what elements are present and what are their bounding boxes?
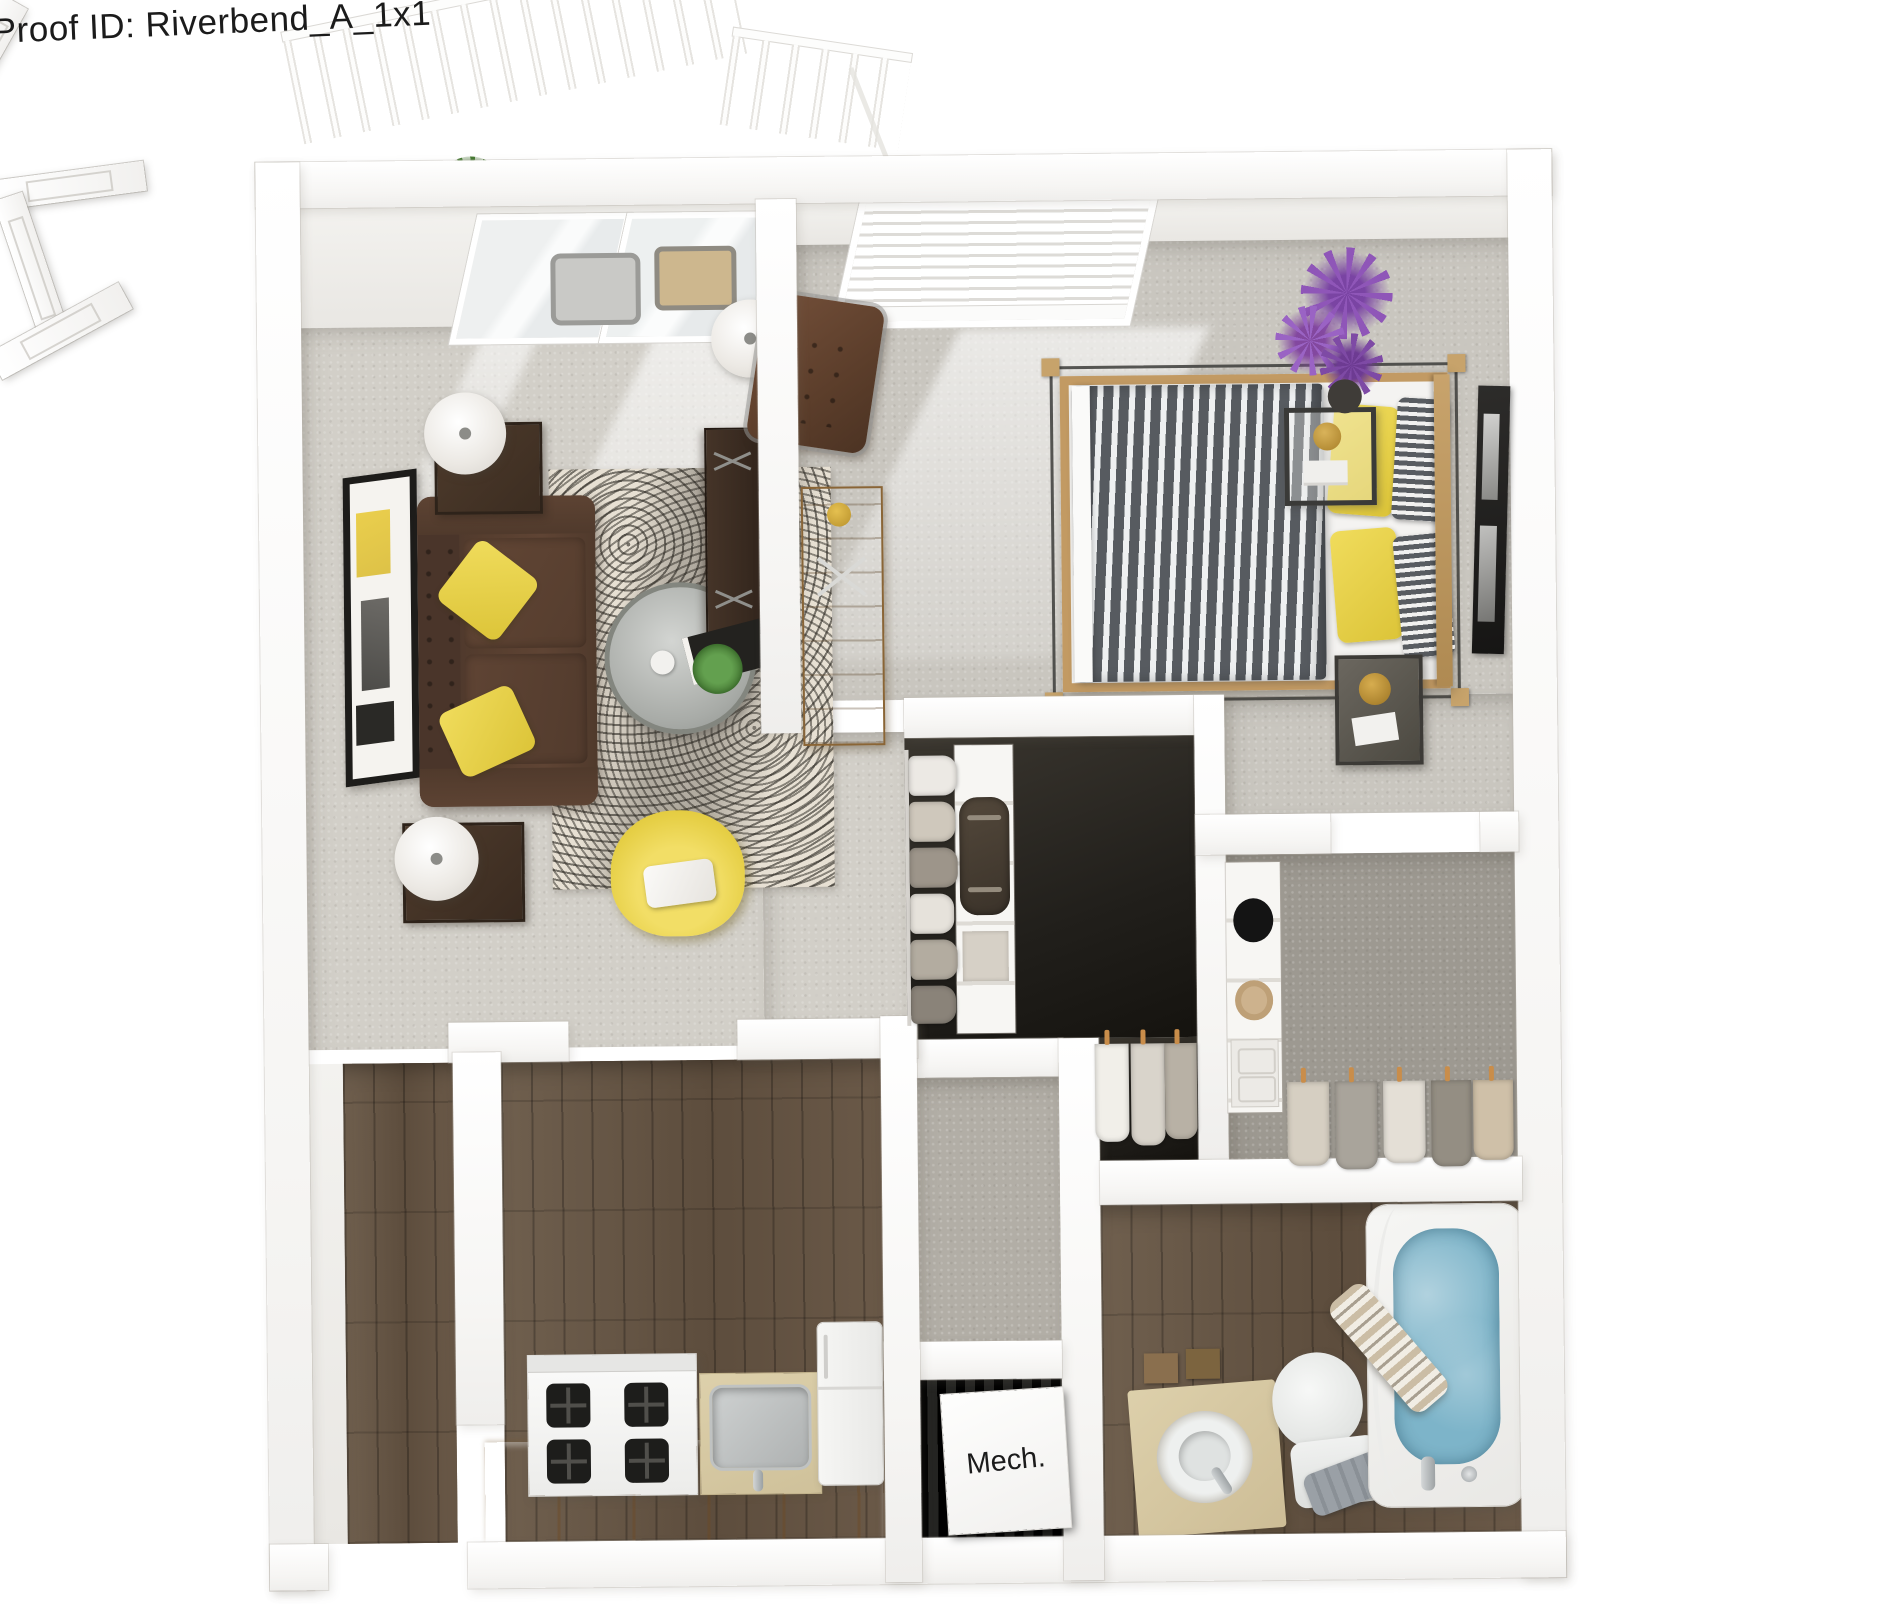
patio-chair [654, 246, 737, 311]
sofa-backrest [417, 497, 462, 807]
accent-chair-yellow [610, 810, 745, 937]
wall-bedroom-south-b [1480, 812, 1518, 852]
refrigerator [817, 1322, 883, 1485]
bedroom-window [832, 193, 1159, 328]
wall-outer-bottom-left [270, 1544, 328, 1591]
stove-burner [624, 1382, 668, 1426]
decor-ball-gold [827, 502, 851, 526]
nightstand-lamp [1359, 673, 1391, 705]
closet-shelf-unit [954, 745, 1015, 1034]
stove-burner [546, 1383, 590, 1427]
nightstand [1335, 655, 1424, 766]
canopy-post [1447, 354, 1465, 372]
wall-bedroom-south-a [1195, 813, 1330, 854]
hanging-clothes [909, 801, 955, 841]
hanging-clothes [1165, 1043, 1198, 1139]
hanging-clothes [910, 847, 958, 888]
wall-nook-top [908, 1038, 1063, 1078]
wall-closet-divider [1194, 695, 1229, 1160]
drawer-unit [1232, 1040, 1279, 1106]
coffee-table-vase [650, 650, 674, 674]
kitchen-faucet [753, 1469, 763, 1491]
nightstand-book [1351, 712, 1399, 746]
floorplan-proof-image: Proof ID: Riverbend_A_1x1 [0, 0, 1887, 1606]
vanity [1127, 1379, 1286, 1538]
canopy-post [1451, 688, 1469, 706]
console-table [801, 486, 886, 746]
hanging-clothes [910, 893, 954, 933]
wall-kitchen-east [880, 1016, 922, 1582]
wall-art [343, 469, 420, 788]
leaning-wall-art [1472, 385, 1511, 654]
entry-wallface [309, 1064, 348, 1544]
hanging-clothes [1335, 1081, 1378, 1169]
plant-purple-flowers [1274, 247, 1408, 416]
sink [1153, 1407, 1256, 1506]
corner-table [1284, 407, 1377, 506]
table-lamp [394, 816, 479, 901]
coffee-table-plant [692, 644, 743, 695]
hanging-clothes [1131, 1043, 1166, 1145]
hanging-clothes [910, 939, 957, 979]
toiletry-box [1186, 1349, 1220, 1379]
entry-door [0, 282, 133, 379]
wall-closet-top [904, 695, 1194, 738]
patio-chair [550, 253, 641, 326]
hanging-clothes [909, 755, 957, 796]
sofa-arm [420, 767, 598, 807]
entry-floor [343, 1063, 458, 1544]
canopy-post [1041, 358, 1059, 376]
tub-handle [1461, 1466, 1477, 1482]
bed-sheet-fold [1072, 386, 1093, 682]
chair-pillow-white [642, 858, 717, 909]
water-heater: Mech. [941, 1387, 1072, 1534]
range-stove [528, 1354, 697, 1496]
table-lamp [424, 392, 507, 475]
duffel-bag [959, 797, 1010, 916]
hanging-clothes [1473, 1080, 1514, 1160]
kitchen-sink-counter [700, 1373, 821, 1494]
hanging-clothes [911, 985, 956, 1023]
mech-room-label: Mech. [938, 1385, 1073, 1536]
nook-floor [908, 1076, 1062, 1345]
wall-living-bedroom-divider [756, 199, 802, 733]
wall-entry [453, 1052, 505, 1424]
headboard [1434, 374, 1453, 686]
media-console [704, 427, 764, 647]
hat-black [1233, 898, 1273, 942]
balcony-railing-right [719, 28, 912, 155]
sofa [417, 495, 598, 807]
hanging-clothes [1383, 1081, 1426, 1163]
toiletry-box [1144, 1353, 1178, 1383]
books [1303, 460, 1347, 482]
storage-box [962, 931, 1009, 981]
vase-gold [1313, 422, 1341, 450]
kitchen-sink [712, 1387, 809, 1468]
hanging-clothes [1095, 1044, 1130, 1142]
hanging-clothes [1431, 1080, 1472, 1166]
floorplan: Mech. [0, 0, 1887, 1606]
stove-burner [547, 1439, 591, 1483]
stove-burner [625, 1438, 669, 1482]
hat-tan [1235, 980, 1273, 1020]
walk-in-shelf-unit [1226, 862, 1283, 1113]
hanging-clothes [1287, 1082, 1330, 1166]
